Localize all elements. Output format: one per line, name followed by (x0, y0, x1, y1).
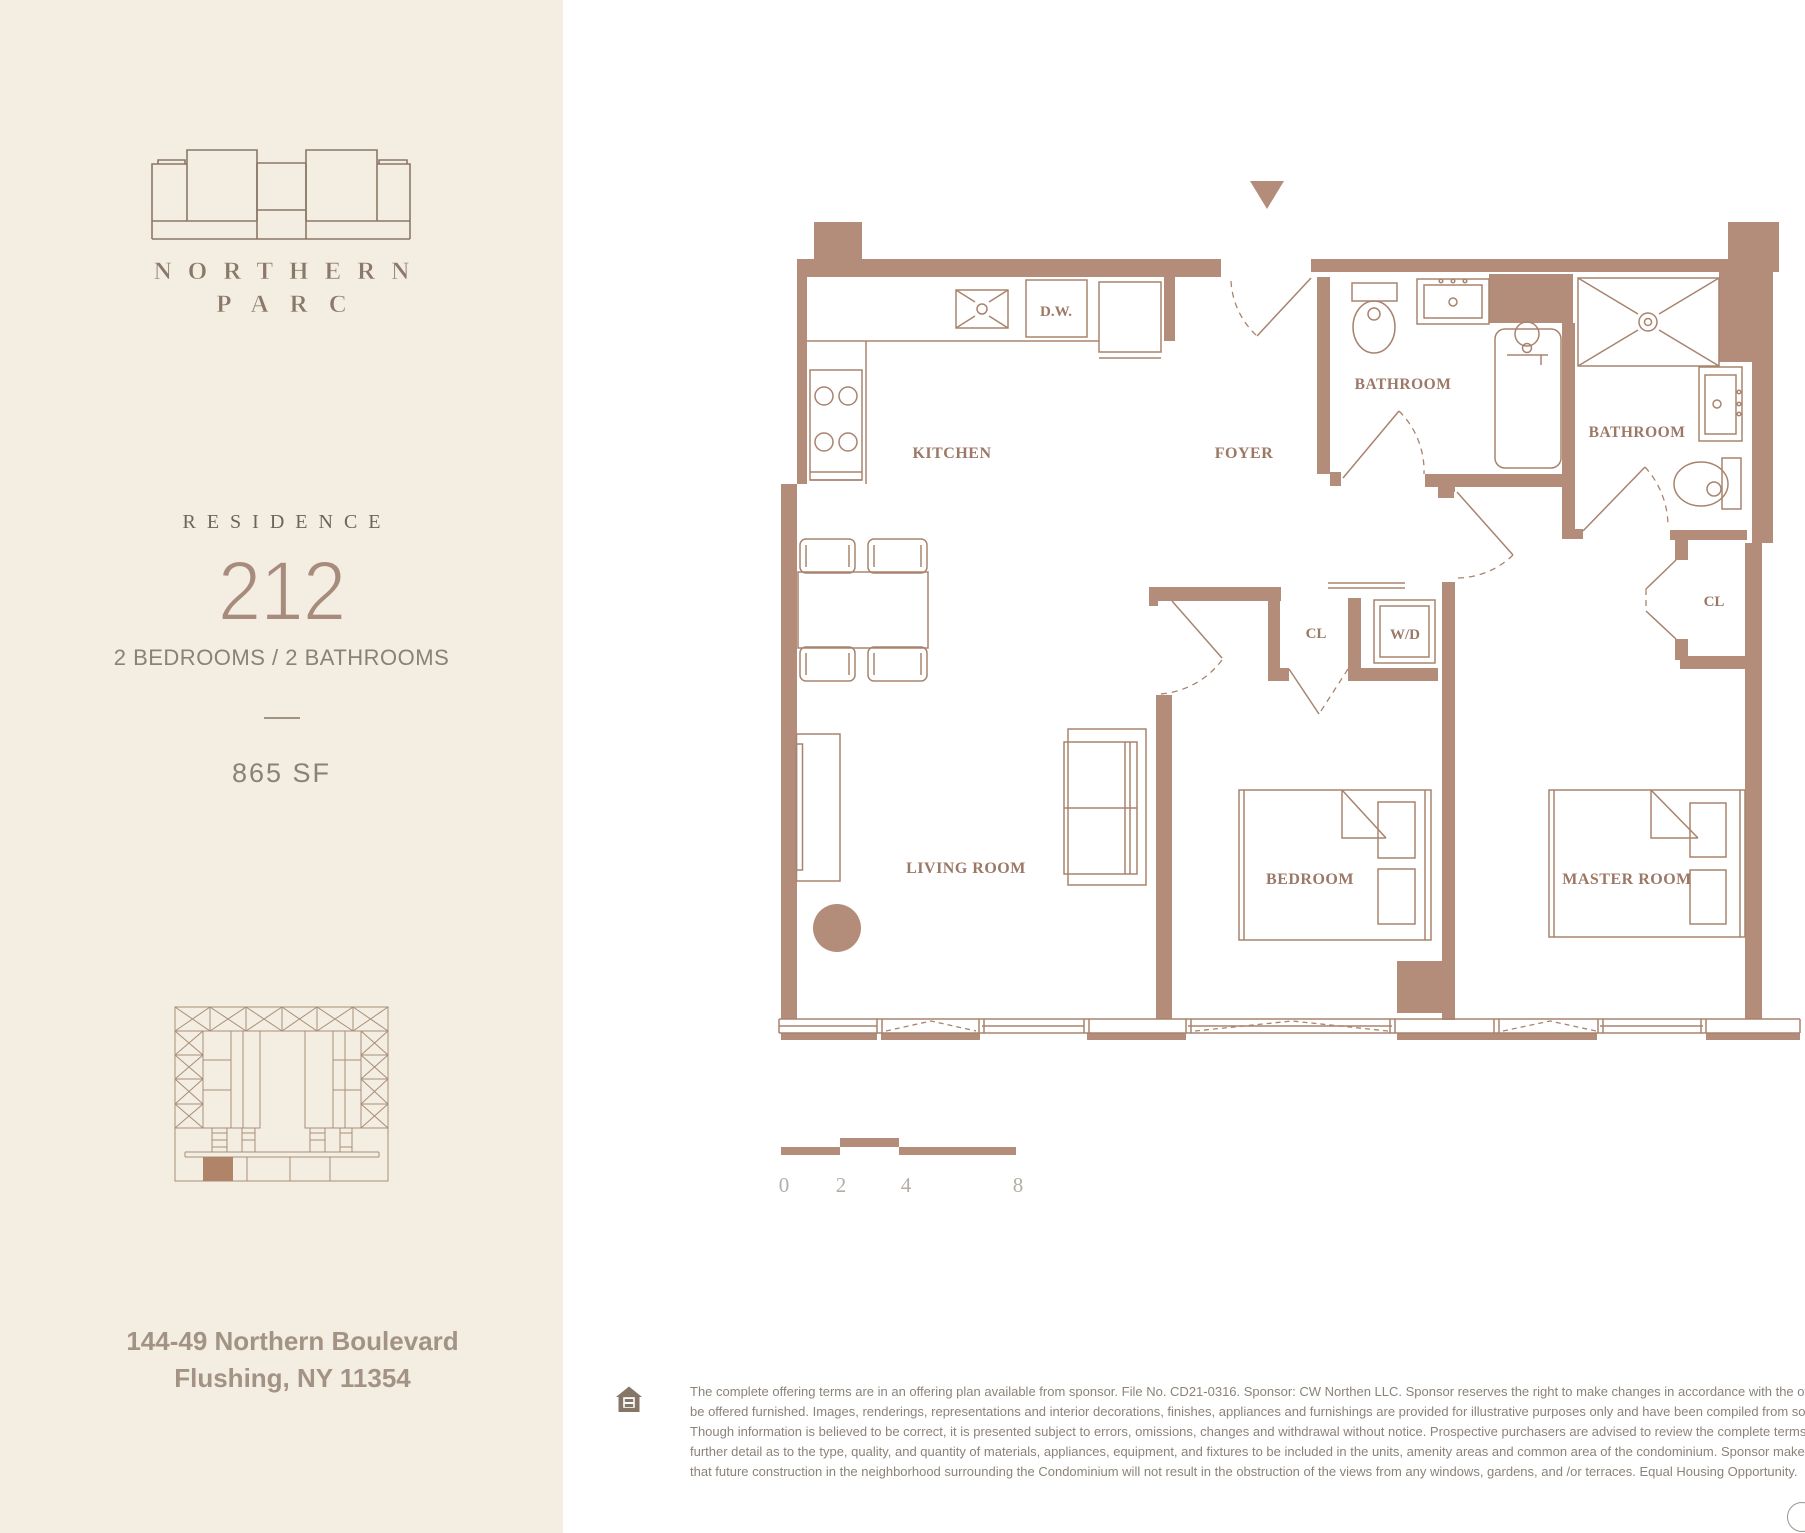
svg-text:BATHROOM: BATHROOM (1355, 376, 1452, 393)
svg-text:CL: CL (1306, 626, 1327, 642)
svg-text:2: 2 (836, 1173, 847, 1197)
svg-text:0: 0 (779, 1173, 790, 1197)
svg-text:8: 8 (1013, 1173, 1024, 1197)
svg-text:BEDROOM: BEDROOM (1266, 871, 1354, 888)
svg-text:4: 4 (901, 1173, 912, 1197)
svg-text:W/D: W/D (1390, 627, 1420, 643)
svg-text:FOYER: FOYER (1215, 445, 1274, 462)
svg-text:BATHROOM: BATHROOM (1589, 424, 1686, 441)
svg-text:CL: CL (1704, 594, 1725, 610)
svg-text:MASTER ROOM: MASTER ROOM (1562, 871, 1692, 888)
svg-text:D.W.: D.W. (1040, 304, 1072, 320)
svg-text:KITCHEN: KITCHEN (912, 445, 991, 462)
svg-text:LIVING ROOM: LIVING ROOM (906, 860, 1026, 877)
